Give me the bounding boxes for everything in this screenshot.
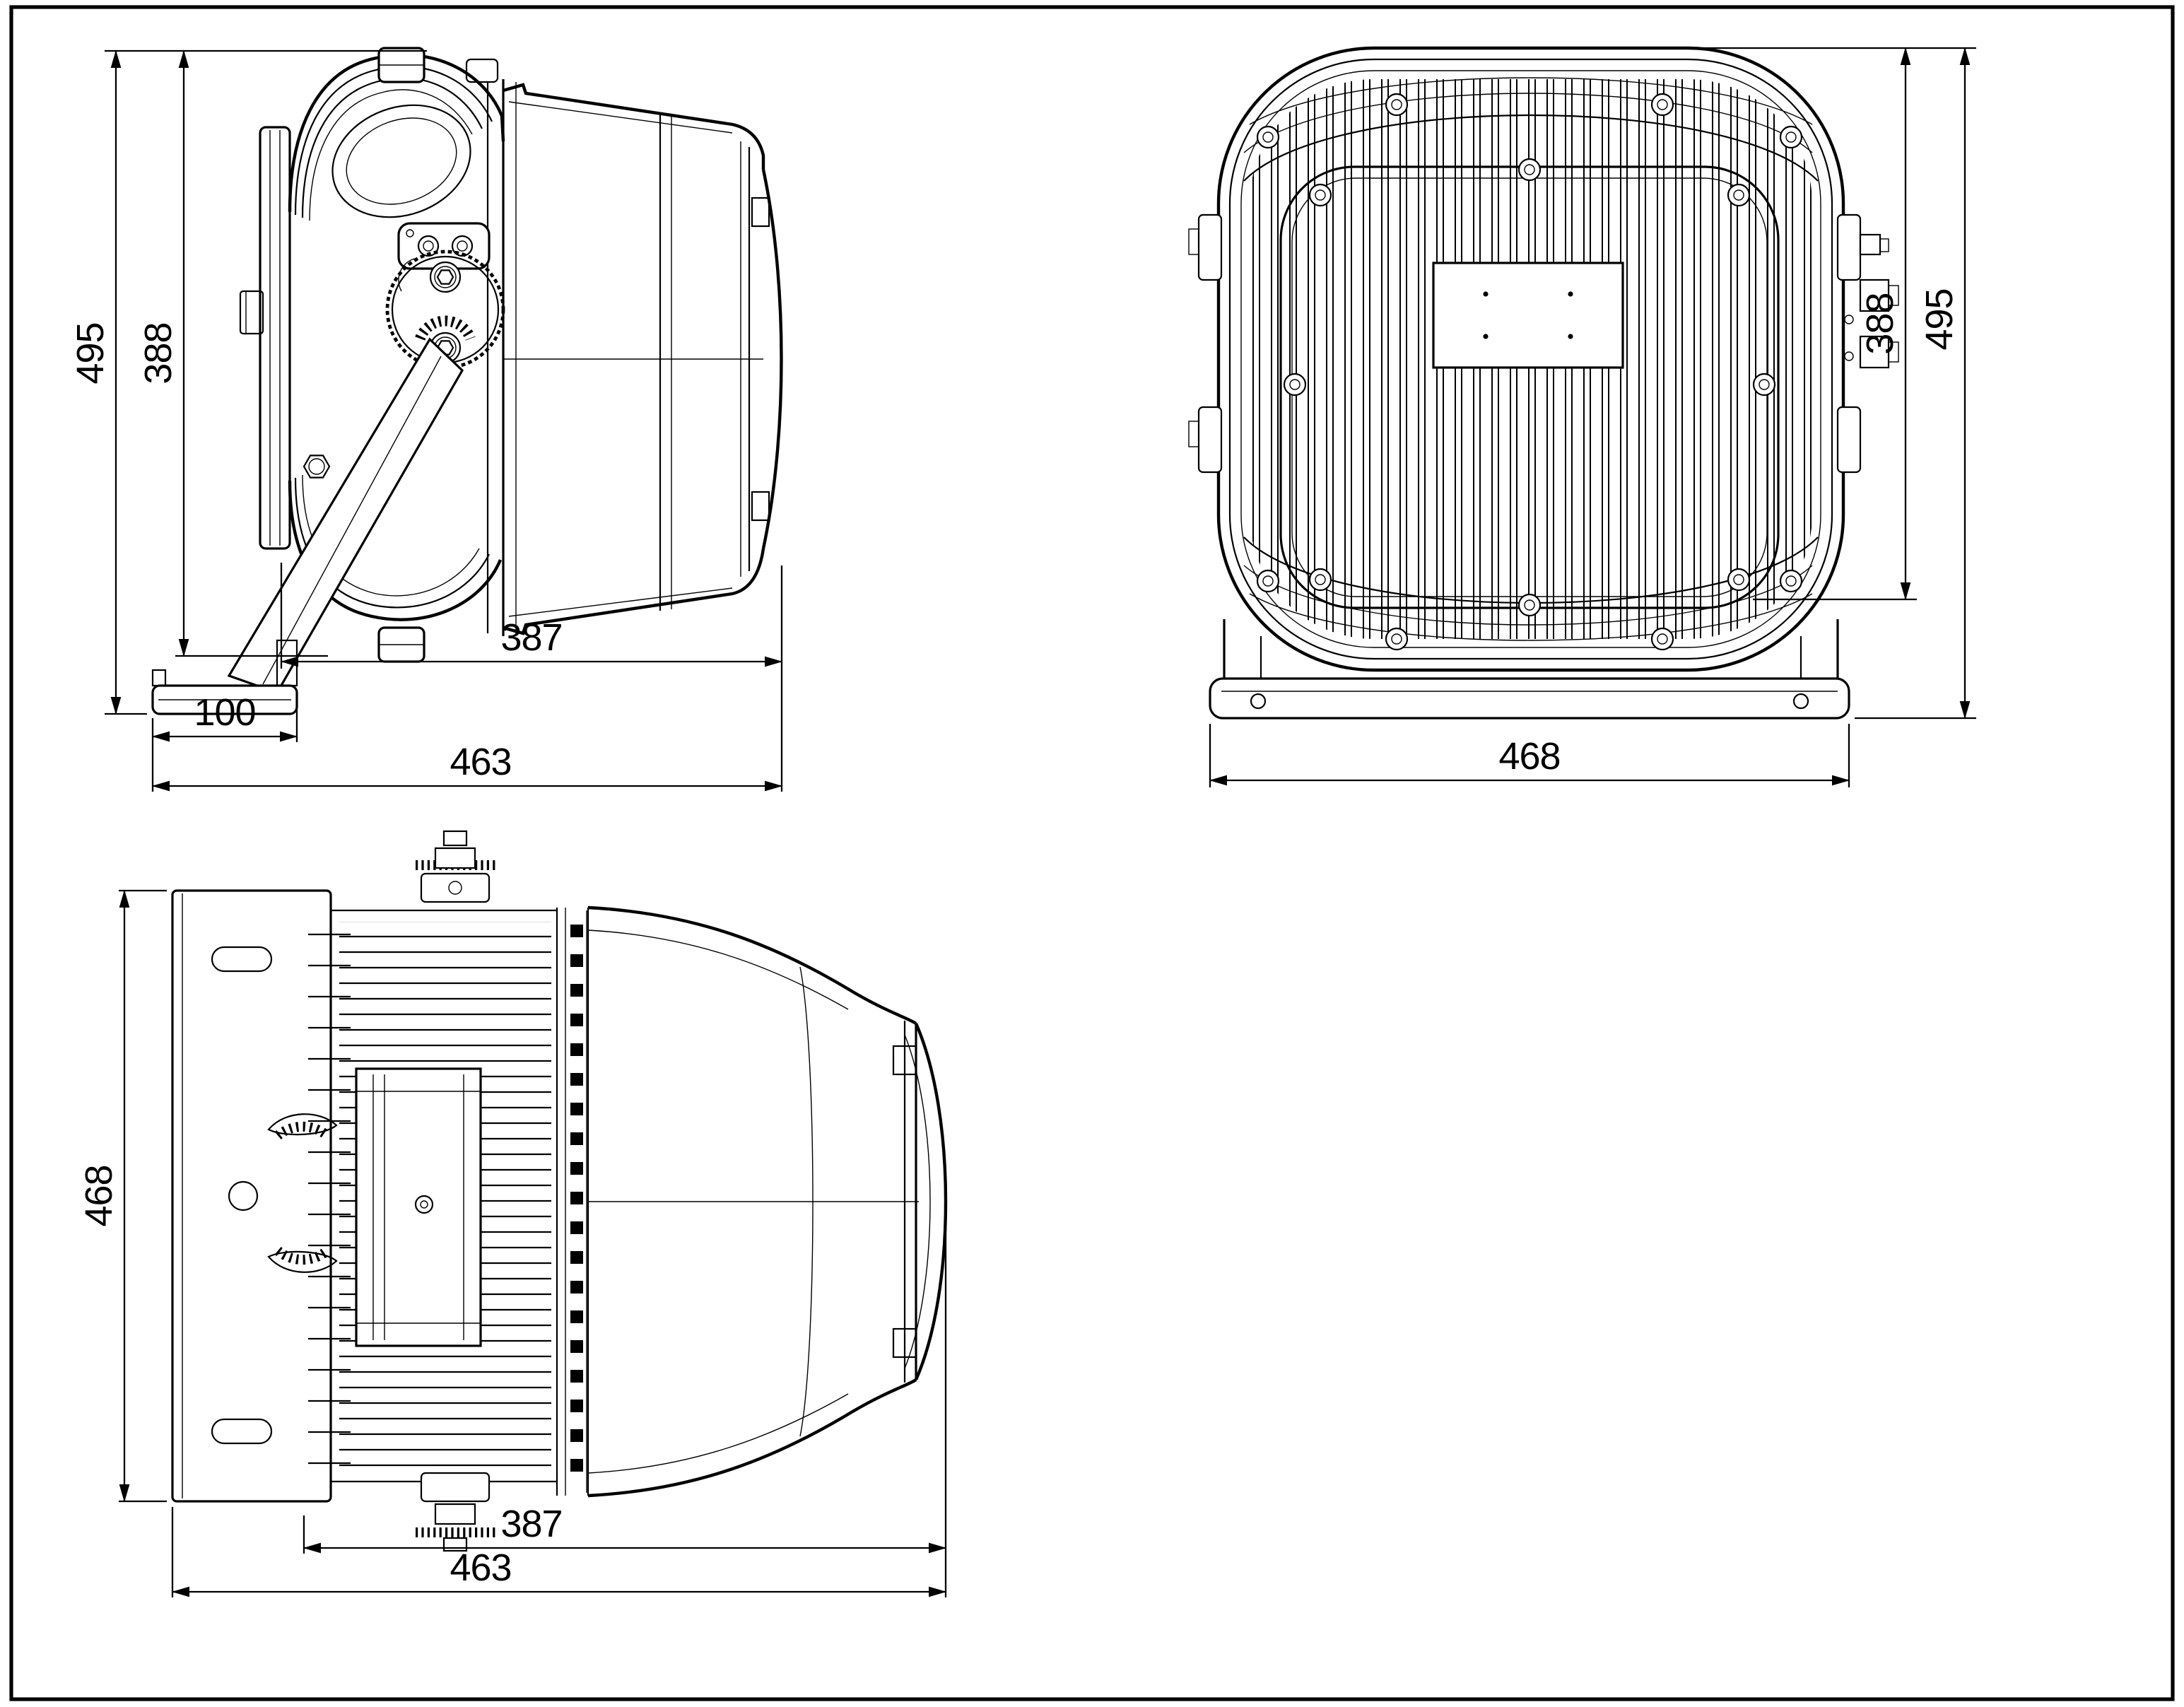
top-lens-arc <box>916 1023 946 1380</box>
top-clamp-top <box>416 831 498 902</box>
dim-label-side-body-length: 387 <box>500 616 562 659</box>
view-top: 468 387 463 <box>78 831 946 1597</box>
side-mounting-arm <box>229 339 462 693</box>
dim-label-side-overall-height: 495 <box>69 322 112 384</box>
plate-center-hole <box>229 1182 257 1210</box>
top-front-housing <box>588 908 946 1496</box>
side-tilt-gear <box>387 223 503 368</box>
top-heatsink-fins <box>308 922 551 1479</box>
dim-label-side-body-height: 388 <box>137 322 180 384</box>
rear-center-plate <box>1433 263 1623 368</box>
dim-label-rear-body-height: 388 <box>1859 293 1901 354</box>
side-rear-plate <box>240 127 290 549</box>
dim-label-top-bracket-height: 468 <box>78 1165 120 1226</box>
top-rear-frame-band <box>557 908 587 1496</box>
dim-label-top-body-length: 387 <box>500 1503 562 1545</box>
plate-slot-top <box>212 947 271 971</box>
side-front-housing <box>503 85 782 633</box>
technical-drawing-canvas: 495 388 387 100 463 <box>0 0 2184 1707</box>
dim-label-rear-bracket-width: 468 <box>1498 735 1560 778</box>
dim-label-side-overall-length: 463 <box>450 741 511 783</box>
view-side: 495 388 387 100 463 <box>69 48 782 792</box>
top-arm-housing <box>356 1069 481 1346</box>
dim-label-side-base-length: 100 <box>194 691 255 734</box>
top-clamp-bottom <box>416 1473 498 1551</box>
dim-label-rear-overall-height: 495 <box>1918 288 1961 350</box>
dim-label-top-overall-length: 463 <box>450 1547 511 1589</box>
plate-slot-bottom <box>212 1419 271 1443</box>
view-rear: 388 495 468 <box>1189 48 1976 787</box>
